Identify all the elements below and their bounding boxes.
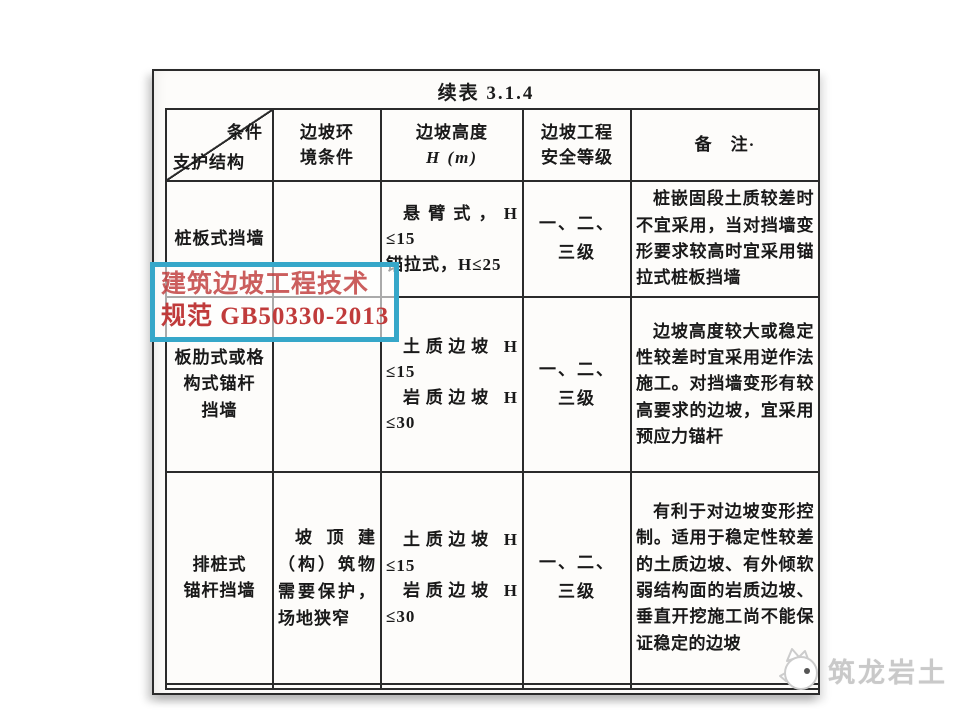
height-line: ≤15 <box>386 226 518 252</box>
cell-structure: 排桩式 锚杆挡墙 <box>166 472 273 684</box>
mascot-icon <box>772 645 826 695</box>
stamp-line2: 规范 GB50330-2013 <box>161 301 389 333</box>
cell-remark: 边坡高度较大或稳定性较差时宜采用逆作法施工。对挡墙变形有较高要求的边坡，宜采用预… <box>631 297 819 472</box>
cell-grade: 一、二、 三级 <box>523 181 631 297</box>
height-line: ≤30 <box>386 410 518 436</box>
height-line: ≤15 <box>386 553 518 579</box>
watermark: 筑龙岩土 <box>772 645 948 695</box>
cell-height: 土质边坡 H ≤15 岩质边坡 H ≤30 <box>381 297 523 472</box>
header-corner-condition: 条件 <box>227 118 263 143</box>
header-row: 条件 支护结构 边坡环 境条件 边坡高度 H (m) 边坡工程 安全等级 备 注… <box>166 109 819 181</box>
header-grade: 边坡工程 安全等级 <box>523 109 631 181</box>
cell-environment: 坡顶建（构）筑物需要保护，场地狭窄 <box>273 472 381 684</box>
spec-table: 条件 支护结构 边坡环 境条件 边坡高度 H (m) 边坡工程 安全等级 备 注… <box>165 108 820 690</box>
header-env: 边坡环 境条件 <box>273 109 381 181</box>
cell-grade: 一、二、 三级 <box>523 297 631 472</box>
height-line: 岩质边坡 H <box>386 578 518 604</box>
header-remark: 备 注· <box>631 109 819 181</box>
height-line: 锚拉式，H≤25 <box>386 252 518 278</box>
height-line: ≤30 <box>386 604 518 630</box>
height-line: 土质边坡 H <box>386 527 518 553</box>
height-line: ≤15 <box>386 359 518 385</box>
cell-height: 土质边坡 H ≤15 岩质边坡 H ≤30 <box>381 472 523 684</box>
header-corner-cell: 条件 支护结构 <box>166 109 273 181</box>
table-row: 排桩式 锚杆挡墙 坡顶建（构）筑物需要保护，场地狭窄 土质边坡 H ≤15 岩质… <box>166 472 819 684</box>
header-height: 边坡高度 H (m) <box>381 109 523 181</box>
header-corner-structure: 支护结构 <box>173 148 245 173</box>
cell-grade: 一、二、 三级 <box>523 472 631 684</box>
header-height-unit: H (m) <box>386 145 518 171</box>
watermark-brand: 筑龙岩土 <box>828 651 948 690</box>
slide-canvas: 续表 3.1.4 条件 支护结构 边坡环 境条件 边坡高度 H (m) 边坡工程… <box>0 0 960 720</box>
partial-row <box>166 684 819 689</box>
scanned-page: 续表 3.1.4 条件 支护结构 边坡环 境条件 边坡高度 H (m) 边坡工程… <box>152 69 820 695</box>
height-line: 土质边坡 H <box>386 334 518 360</box>
stamp-overlay: 建筑边坡工程技术 规范 GB50330-2013 <box>150 262 399 342</box>
cell-remark: 桩嵌固段土质较差时不宜采用，当对挡墙变形要求较高时宜采用锚拉式桩板挡墙 <box>631 181 819 297</box>
height-line: 悬臂式，H <box>386 201 518 227</box>
stamp-line1: 建筑边坡工程技术 <box>161 269 389 301</box>
cell-height: 悬臂式，H ≤15 锚拉式，H≤25 <box>381 181 523 297</box>
height-line: 岩质边坡 H <box>386 385 518 411</box>
header-height-label: 边坡高度 <box>386 120 518 146</box>
table-title: 续表 3.1.4 <box>154 78 818 105</box>
